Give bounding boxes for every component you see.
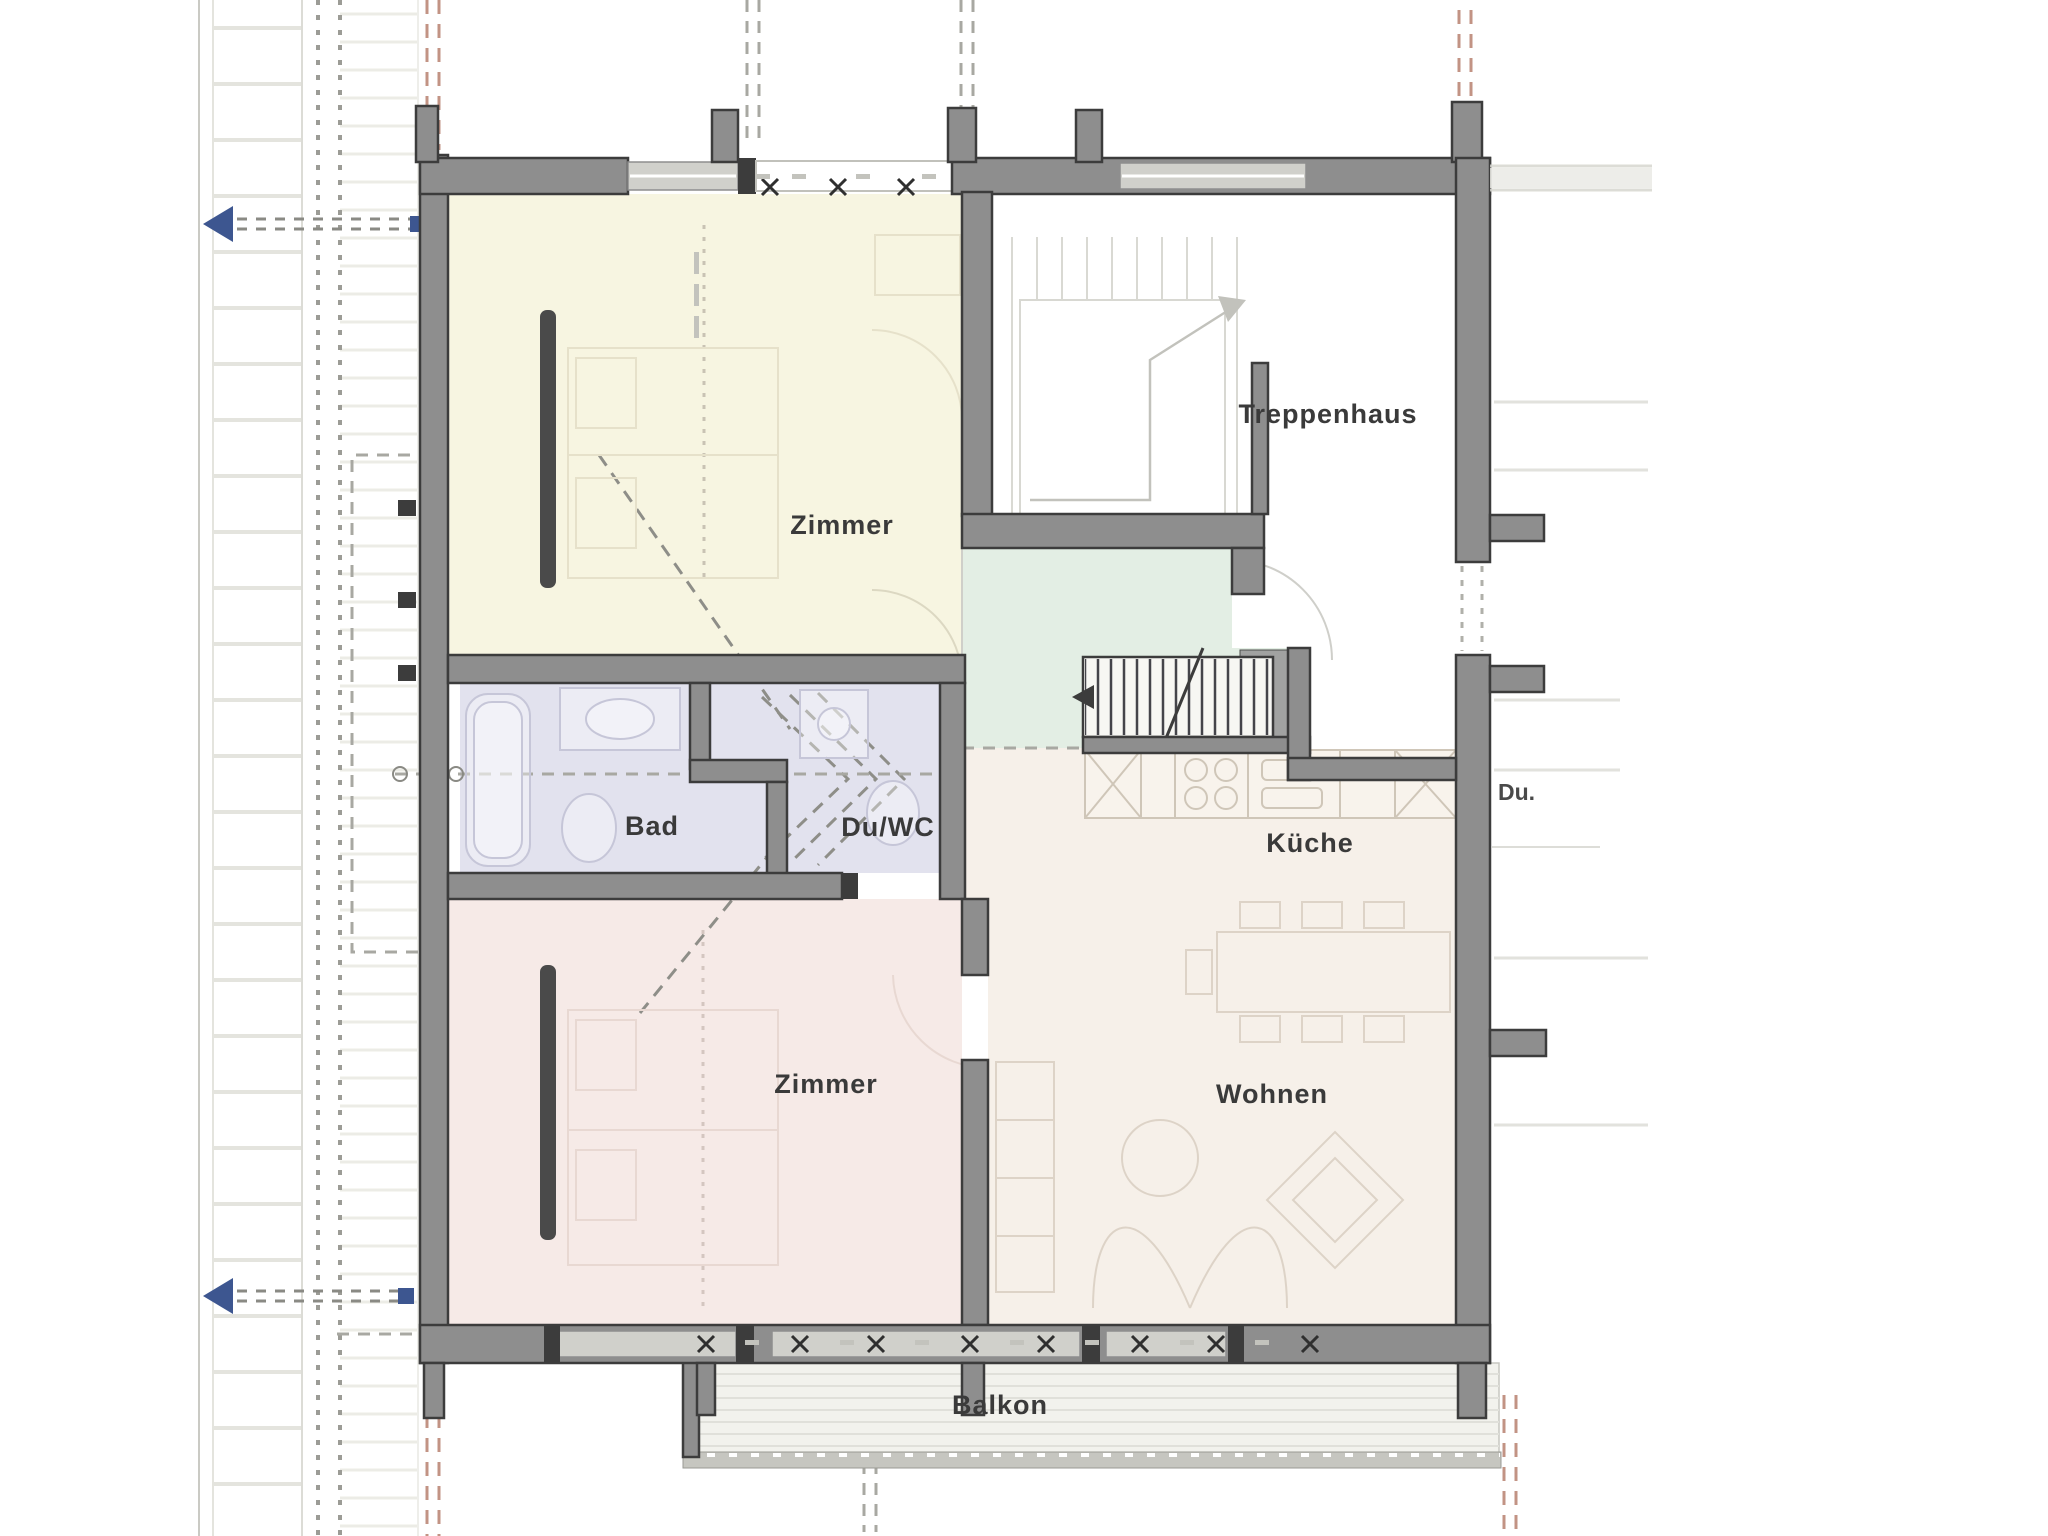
floor-plan-page: Zimmer Treppenhaus Bad Du/WC Küche Wohne…	[0, 0, 2048, 1536]
wall-stairwell-left	[962, 192, 992, 516]
room-label-zimmer-bottom: Zimmer	[774, 1069, 878, 1099]
wall-top	[420, 158, 628, 194]
room-label-kueche: Küche	[1266, 828, 1354, 858]
wall-right	[1456, 655, 1490, 1363]
window	[1106, 1331, 1226, 1357]
neighbor-context-right	[1490, 166, 1652, 1125]
room-label-duwc: Du/WC	[841, 812, 934, 842]
room-label-wohnen: Wohnen	[1216, 1079, 1328, 1109]
wall-right	[1456, 158, 1490, 562]
radiator-stub	[1490, 1030, 1546, 1056]
room-label-bad: Bad	[625, 811, 679, 841]
room-label-zimmer-top: Zimmer	[790, 510, 894, 540]
neighbor-label-du: Du.	[1498, 779, 1535, 805]
floor-plan: Zimmer Treppenhaus Bad Du/WC Küche Wohne…	[0, 0, 2048, 1536]
room-label-balkon: Balkon	[952, 1390, 1048, 1420]
wall-left	[420, 155, 448, 1363]
room-zimmer-bottom	[448, 899, 962, 1325]
room-label-treppenhaus: Treppenhaus	[1238, 399, 1417, 429]
wall-duwc-right	[940, 683, 965, 899]
wall-stairwell-bottom	[962, 514, 1264, 548]
stair-internal	[1072, 648, 1310, 753]
toilet	[562, 794, 616, 862]
room-wohnen-kueche	[962, 748, 1456, 1325]
window	[558, 1331, 736, 1357]
wall-bath-top	[448, 655, 965, 683]
wardrobe-bar-top	[540, 310, 556, 588]
wardrobe-bar-bottom	[540, 965, 556, 1240]
wall-bath-bottom	[448, 873, 842, 899]
